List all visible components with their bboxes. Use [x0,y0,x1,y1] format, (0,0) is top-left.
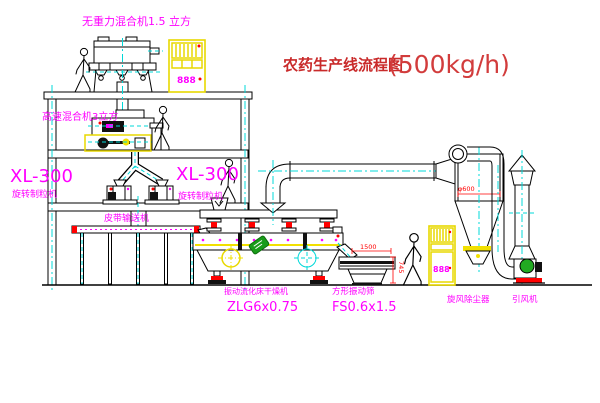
dryer-foot-left [208,271,226,284]
process-flow-drawing: 888 [0,0,600,403]
granulator-left-machine [103,180,137,204]
control-cabinet-upper: 888 [169,40,205,92]
sieve-model: FS0.6x1.5 [332,300,397,315]
fan-motor [520,259,534,273]
sieve-length-dim: 1500 [360,243,377,251]
dryer-top-rail [200,210,337,218]
granulator-left-name: 旋转制粒机 [12,188,57,200]
person-figure [403,234,421,285]
cabinet-upper-display: 888 [177,76,196,86]
vibrating-sieve: 1500 745 [337,243,405,286]
cyclone-label: 旋风除尘器 [447,294,490,305]
sieve-dim-length: 1500 [352,243,391,254]
outlet-elbow-circle [449,145,467,163]
control-cabinet-lower: 888 [429,226,455,285]
drawing-canvas: 888 [0,0,600,403]
belt-conveyor-label: 皮带输送机 [104,212,149,224]
high-speed-mixer-label: 高速混合机3立方 [42,110,118,123]
fan-label: 引风机 [512,294,538,305]
dryer-foot-right [310,271,328,284]
title-capacity: (500kg/h) [388,50,510,79]
granulator-left-model: XL-300 [10,166,73,187]
conveyor-legs [81,233,194,284]
sieve-height-dim: 745 [397,261,405,273]
cyclone-separator: φ600 [449,145,503,275]
spring-mounts [207,219,334,231]
fluid-bed-dryer [193,198,343,284]
granulator-right-machine [145,180,179,204]
title-text: 农药生产线流程图 [282,56,403,74]
sieve-base [348,269,387,283]
zero-gravity-mixer [86,37,163,116]
cabinet-lower-display: 888 [433,265,450,274]
dryer-trough [197,250,339,271]
granulator-right-name: 旋转制粒机 [178,190,223,202]
discharge-flange [463,246,491,251]
dryer-name: 振动流化床干燥机 [224,286,288,296]
person-figure [75,48,90,92]
fan-base [516,278,542,283]
induced-draft-fan [513,259,545,283]
cyclone-cone [455,201,503,250]
sieve-name: 方形振动筛 [332,286,375,297]
cyclone-diameter-dim: φ600 [458,185,475,193]
gravity-mixer-label: 无重力混合机1.5 立方 [82,14,191,28]
dryer-model: ZLG6x0.75 [227,300,298,315]
floor-slab-top [44,92,252,99]
cyclone-inlet-diffuser [436,158,455,184]
granulator-right-model: XL-300 [176,164,239,185]
